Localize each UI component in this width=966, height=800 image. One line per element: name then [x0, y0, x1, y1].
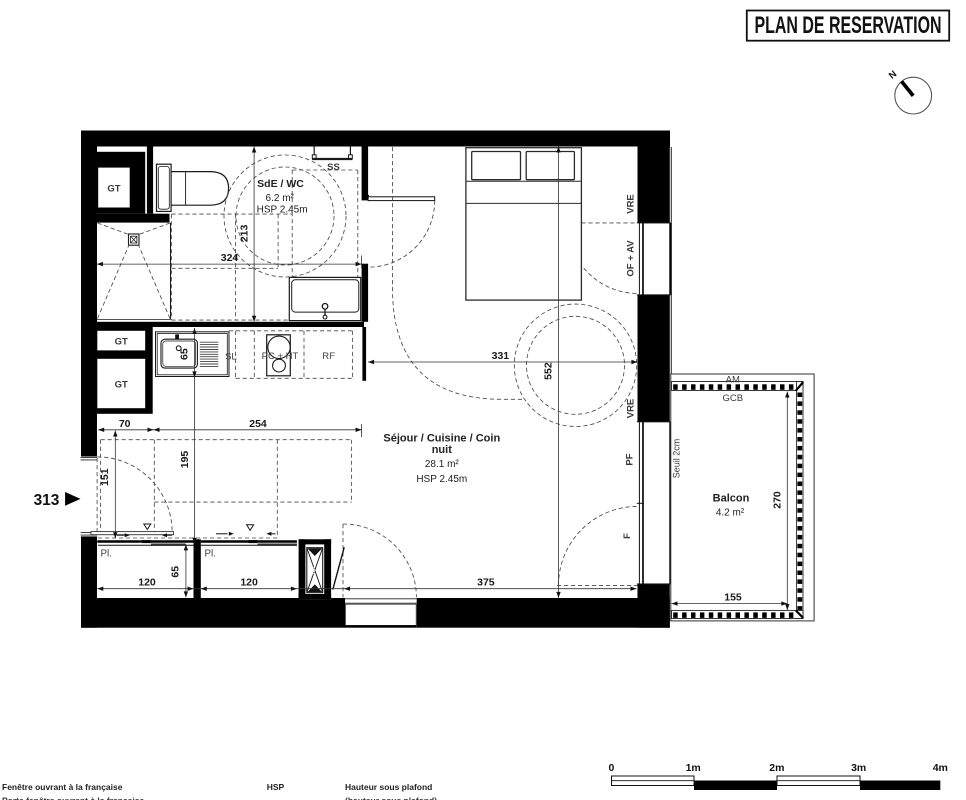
svg-text:4.2 m²: 4.2 m²	[716, 508, 745, 519]
svg-text:6.2 m²: 6.2 m²	[266, 193, 295, 204]
svg-text:GT: GT	[107, 183, 120, 194]
svg-text:GCB: GCB	[723, 393, 744, 404]
svg-text:SL: SL	[225, 352, 237, 363]
svg-text:VRE: VRE	[626, 194, 637, 214]
svg-text:65: 65	[170, 566, 182, 578]
svg-text:Porte fenêtre ouvrant à la fra: Porte fenêtre ouvrant à la française	[2, 796, 144, 800]
svg-text:2m: 2m	[769, 762, 784, 774]
svg-text:Seuil 2cm: Seuil 2cm	[672, 439, 682, 479]
svg-text:120: 120	[240, 576, 258, 588]
svg-text:RF: RF	[322, 351, 335, 362]
svg-text:OF + AV: OF + AV	[626, 240, 637, 277]
svg-text:3m: 3m	[851, 762, 866, 774]
svg-text:254: 254	[249, 418, 267, 430]
svg-text:nuit: nuit	[432, 444, 452, 456]
svg-text:552: 552	[543, 362, 555, 380]
svg-text:VRE: VRE	[626, 399, 637, 419]
svg-text:GT: GT	[115, 336, 128, 347]
svg-text:AM: AM	[726, 374, 740, 385]
svg-text:151: 151	[99, 468, 111, 486]
svg-text:0: 0	[608, 762, 614, 774]
svg-text:Hauteur sous plafond: Hauteur sous plafond	[345, 782, 432, 792]
svg-text:TBL: TBL	[311, 565, 317, 575]
svg-text:Fenêtre ouvrant à la française: Fenêtre ouvrant à la française	[2, 782, 123, 792]
svg-text:1m: 1m	[686, 762, 701, 774]
svg-text:375: 375	[477, 576, 495, 588]
svg-text:324: 324	[221, 252, 239, 264]
svg-text:Pl.: Pl.	[101, 549, 112, 560]
svg-text:65: 65	[179, 348, 191, 360]
svg-text:Séjour / Cuisine / Coin: Séjour / Cuisine / Coin	[383, 433, 500, 445]
svg-text:155: 155	[724, 592, 742, 604]
svg-text:70: 70	[119, 418, 131, 430]
svg-text:HSP 2.45m: HSP 2.45m	[257, 204, 308, 215]
svg-text:PF: PF	[625, 453, 636, 465]
svg-text:SS: SS	[327, 162, 340, 173]
svg-text:F: F	[622, 533, 633, 539]
svg-text:331: 331	[492, 350, 510, 362]
svg-text:SdE / WC: SdE / WC	[257, 178, 304, 190]
svg-text:GT: GT	[115, 379, 128, 390]
svg-text:PC + HT: PC + HT	[262, 351, 299, 362]
svg-text:(hauteur sous plafond): (hauteur sous plafond)	[345, 796, 437, 800]
svg-text:195: 195	[179, 451, 191, 469]
svg-text:PLAN DE RESERVATION: PLAN DE RESERVATION	[755, 12, 942, 39]
svg-text:270: 270	[772, 491, 784, 509]
svg-text:28.1 m²: 28.1 m²	[425, 459, 460, 470]
svg-text:120: 120	[138, 576, 156, 588]
svg-text:HSP 2.45m: HSP 2.45m	[416, 474, 467, 485]
svg-text:Pl.: Pl.	[205, 549, 216, 560]
svg-text:HSP: HSP	[267, 782, 285, 792]
svg-text:313: 313	[34, 492, 60, 509]
svg-text:Balcon: Balcon	[713, 493, 750, 505]
svg-text:213: 213	[238, 224, 250, 242]
svg-text:4m: 4m	[933, 762, 948, 774]
